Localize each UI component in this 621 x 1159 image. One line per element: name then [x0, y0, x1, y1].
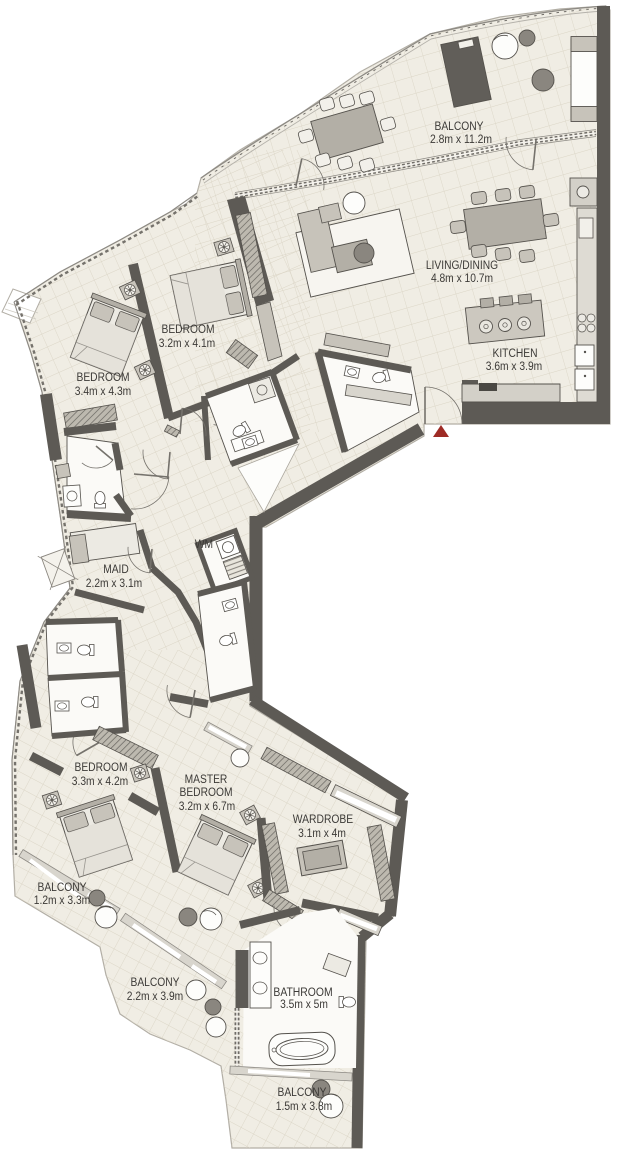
svg-text:2.8m x 11.2m: 2.8m x 11.2m [430, 132, 492, 146]
svg-text:WM: WM [195, 537, 213, 551]
svg-text:2.2m x 3.9m: 2.2m x 3.9m [127, 989, 183, 1003]
svg-text:1.2m x 3.3m: 1.2m x 3.3m [34, 893, 90, 907]
svg-text:BEDROOM: BEDROOM [180, 785, 233, 799]
svg-text:3.4m x 4.3m: 3.4m x 4.3m [75, 384, 131, 398]
svg-text:3.5m x 5m: 3.5m x 5m [280, 997, 328, 1011]
svg-text:BALCONY: BALCONY [131, 975, 180, 989]
svg-text:1.5m x 3.8m: 1.5m x 3.8m [276, 1099, 332, 1113]
svg-text:BALCONY: BALCONY [38, 880, 87, 894]
svg-text:MAID: MAID [103, 562, 129, 576]
svg-text:2.2m x 3.1m: 2.2m x 3.1m [86, 576, 142, 590]
svg-text:KITCHEN: KITCHEN [493, 346, 538, 360]
svg-text:3.3m x 4.2m: 3.3m x 4.2m [72, 774, 128, 788]
svg-text:3.1m x 4m: 3.1m x 4m [298, 826, 346, 840]
svg-text:3.6m x 3.9m: 3.6m x 3.9m [486, 359, 542, 373]
svg-text:3.2m x 4.1m: 3.2m x 4.1m [159, 336, 215, 350]
svg-text:BEDROOM: BEDROOM [75, 760, 128, 774]
svg-text:3.2m x 6.7m: 3.2m x 6.7m [179, 799, 235, 813]
svg-text:BALCONY: BALCONY [435, 119, 484, 133]
svg-text:BEDROOM: BEDROOM [162, 322, 215, 336]
svg-text:WARDROBE: WARDROBE [293, 812, 353, 826]
svg-text:BALCONY: BALCONY [278, 1085, 327, 1099]
svg-text:BEDROOM: BEDROOM [77, 370, 130, 384]
svg-text:MASTER: MASTER [185, 772, 228, 786]
svg-text:4.8m x 10.7m: 4.8m x 10.7m [431, 271, 493, 285]
svg-text:LIVING/DINING: LIVING/DINING [426, 258, 498, 272]
